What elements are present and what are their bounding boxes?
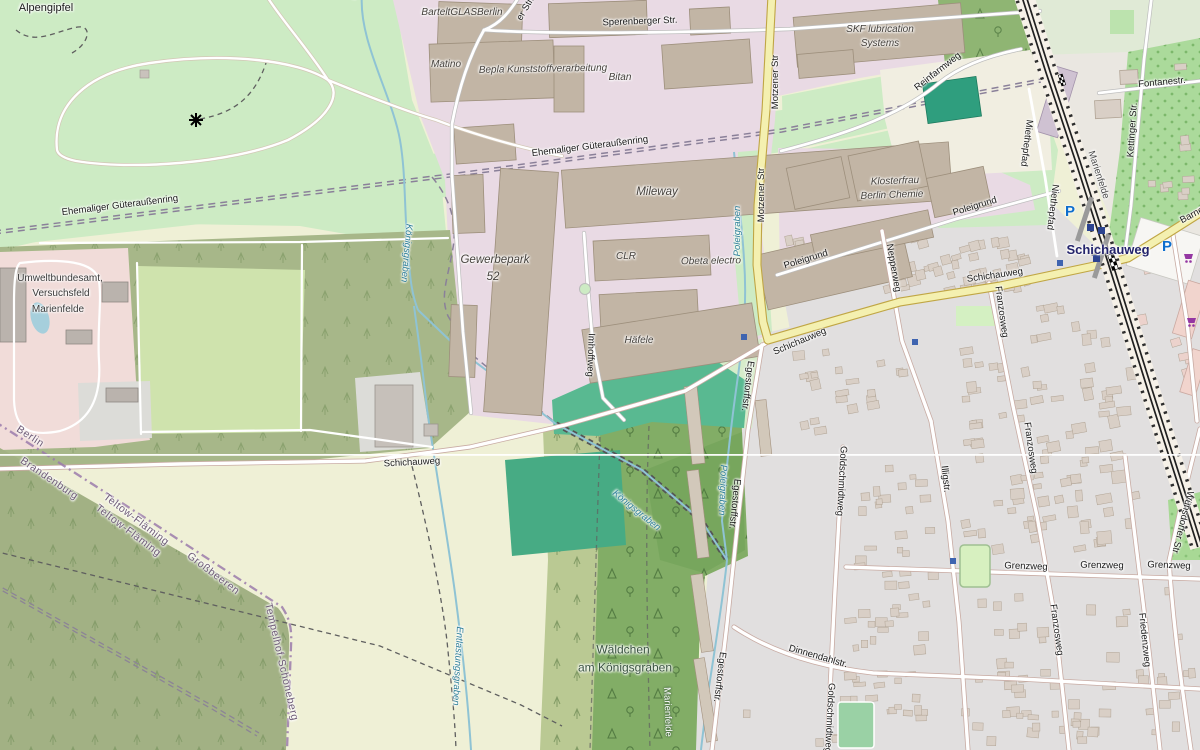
map-canvas[interactable]: Alpengipfel BarteltGLASBerlin er Str. Sp… xyxy=(0,0,1200,750)
map-render-layer xyxy=(0,0,1200,750)
tile-artifact-line xyxy=(0,454,1200,456)
viewpoint-icon xyxy=(189,113,203,127)
